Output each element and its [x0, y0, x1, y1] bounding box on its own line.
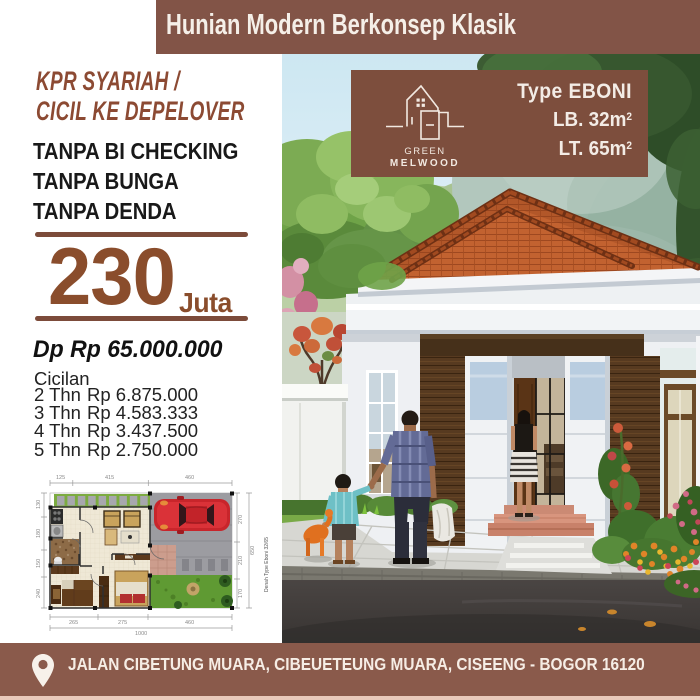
- svg-text:460: 460: [185, 620, 194, 626]
- svg-text:210: 210: [238, 556, 244, 565]
- svg-text:275: 275: [118, 620, 127, 626]
- svg-text:460: 460: [185, 475, 194, 481]
- svg-text:180: 180: [36, 529, 42, 538]
- svg-text:130: 130: [36, 500, 42, 509]
- svg-text:170: 170: [238, 589, 244, 598]
- svg-text:650: 650: [250, 546, 256, 555]
- svg-text:265: 265: [69, 620, 78, 626]
- svg-text:240: 240: [36, 589, 42, 598]
- svg-text:1000: 1000: [135, 631, 147, 637]
- svg-text:Denah Type Eboni 32/65: Denah Type Eboni 32/65: [264, 537, 270, 592]
- svg-text:150: 150: [36, 559, 42, 568]
- svg-text:125: 125: [56, 475, 65, 481]
- svg-text:415: 415: [105, 475, 114, 481]
- svg-text:270: 270: [238, 515, 244, 524]
